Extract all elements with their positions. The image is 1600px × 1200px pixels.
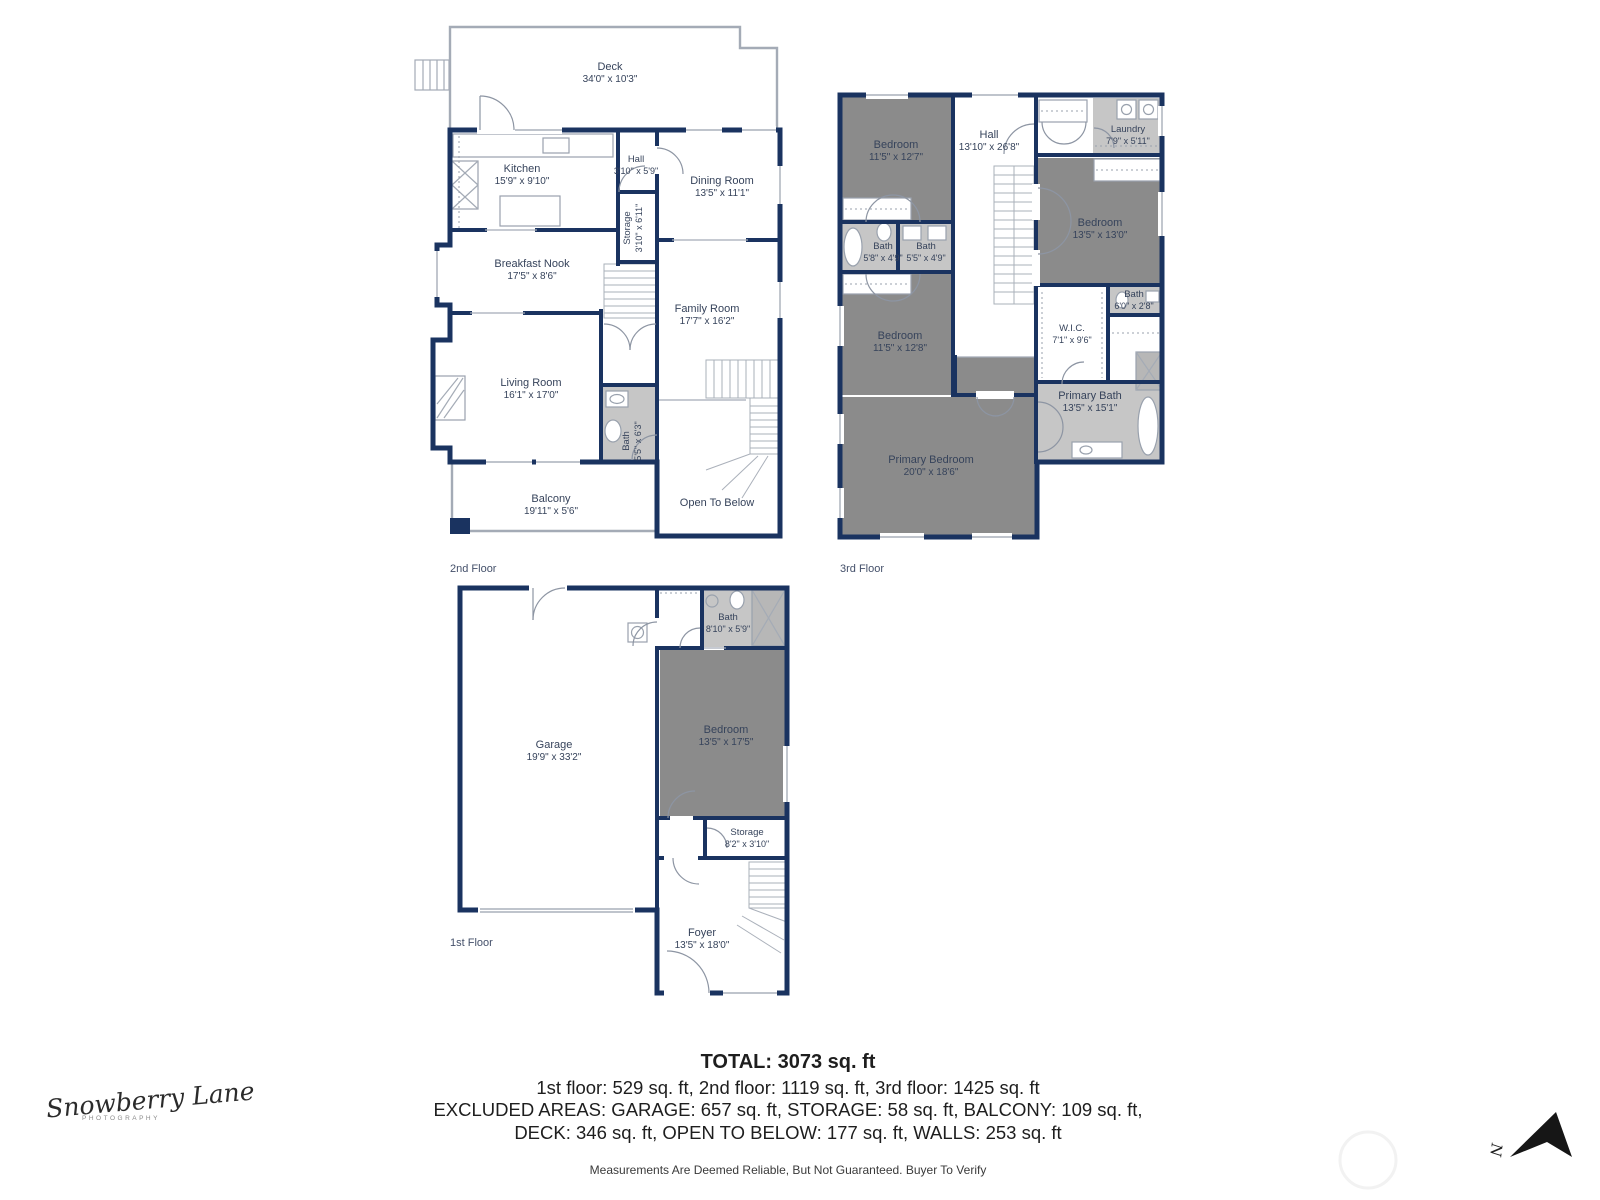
room-name: Dining Room (690, 175, 754, 187)
stairs-icon (737, 862, 787, 953)
excluded-areas-line-2: DECK: 346 sq. ft, OPEN TO BELOW: 177 sq.… (0, 1122, 1576, 1144)
room-name: Balcony (531, 493, 571, 505)
room-name: Bath (621, 431, 632, 451)
floor-label: 2nd Floor (450, 563, 497, 575)
room-dims: 13'5" x 15'1" (1063, 403, 1118, 414)
floorplan-drawing: Deck34'0" x 10'3"Kitchen15'9" x 9'10"Hal… (0, 0, 1600, 1200)
room-dims: 13'5" x 13'0" (1073, 230, 1128, 241)
room-dims: 6'0" x 2'8" (1114, 301, 1153, 311)
room-dims: 19'9" x 33'2" (527, 752, 582, 763)
room-name: Kitchen (504, 163, 541, 175)
room-name: Primary Bath (1058, 390, 1122, 402)
room-dims: 20'0" x 18'6" (904, 467, 959, 478)
room-name: Garage (536, 739, 573, 751)
room-name: Foyer (688, 927, 716, 939)
disclaimer: Measurements Are Deemed Reliable, But No… (0, 1163, 1576, 1177)
room-name: Open To Below (680, 497, 754, 509)
room-dims: 13'5" x 18'0" (675, 940, 730, 951)
room-dims: 3'10" x 5'9" (614, 166, 658, 176)
room-name: Bath (873, 241, 893, 252)
total-area: TOTAL: 3073 sq. ft (0, 1051, 1576, 1074)
room-name: Storage (730, 827, 763, 838)
floorplan-1st-floor: Garage19'9" x 33'2"Bath8'10" x 5'9"Bedro… (450, 584, 791, 997)
room-name: Hall (980, 129, 999, 141)
room-dims: 5'8" x 4'9" (863, 253, 902, 263)
room-name: Breakfast Nook (494, 258, 570, 270)
room-dims: 8'2" x 3'10" (725, 839, 769, 849)
room-dims: 11'5" x 12'8" (873, 343, 928, 354)
room-name: Bedroom (1078, 217, 1123, 229)
room-dims: 3'10" x 6'11" (634, 204, 644, 253)
room-dims: 17'5" x 8'6" (507, 271, 557, 282)
room-name: Bath (718, 612, 738, 623)
floorplan-2nd-floor: Deck34'0" x 10'3"Kitchen15'9" x 9'10"Hal… (415, 27, 784, 575)
room-name: Bedroom (878, 330, 923, 342)
room-name: W.I.C. (1059, 323, 1085, 334)
room-dims: 8'10" x 5'9" (706, 624, 750, 634)
room-dims: 13'5" x 11'1" (695, 188, 750, 199)
room-name: Bedroom (874, 139, 919, 151)
room-name: Bath (916, 241, 936, 252)
room-name: Family Room (675, 303, 740, 315)
photographer-logo: Snowberry Lane PHOTOGRAPHY (46, 1088, 196, 1122)
stairs-icon (994, 166, 1034, 304)
room-name: Hall (628, 154, 644, 165)
room-name: Storage (622, 211, 633, 244)
room-name: Deck (597, 61, 623, 73)
room-dims: 17'7" x 16'2" (680, 316, 735, 327)
room-dims: 5'5" x 4'9" (906, 253, 945, 263)
room-name: Bath (1124, 289, 1144, 300)
room-name: Living Room (500, 377, 561, 389)
floor-label: 3rd Floor (840, 563, 884, 575)
room-dims: 7'1" x 9'6" (1052, 335, 1091, 345)
room-name: Primary Bedroom (888, 454, 974, 466)
room-name: Laundry (1111, 124, 1146, 135)
room-dims: 7'9" x 5'11" (1106, 136, 1150, 146)
room-dims: 13'5" x 17'5" (699, 737, 754, 748)
room-dims: 11'5" x 12'7" (869, 152, 924, 163)
room-dims: 15'9" x 9'10" (495, 176, 550, 187)
room-dims: 34'0" x 10'3" (583, 74, 638, 85)
floorplan-sheet: Deck34'0" x 10'3"Kitchen15'9" x 9'10"Hal… (0, 0, 1600, 1200)
room-dims: 13'10" x 26'8" (959, 142, 1020, 153)
room-dims: 19'11" x 5'6" (524, 506, 579, 517)
floorplan-3rd-floor: Bedroom11'5" x 12'7"Hall13'10" x 26'8"La… (836, 91, 1166, 575)
floor-label: 1st Floor (450, 937, 493, 949)
room-dims: 16'1" x 17'0" (504, 390, 559, 401)
room-name: Bedroom (704, 724, 749, 736)
room-dims: 5'5" x 6'3" (633, 421, 643, 460)
